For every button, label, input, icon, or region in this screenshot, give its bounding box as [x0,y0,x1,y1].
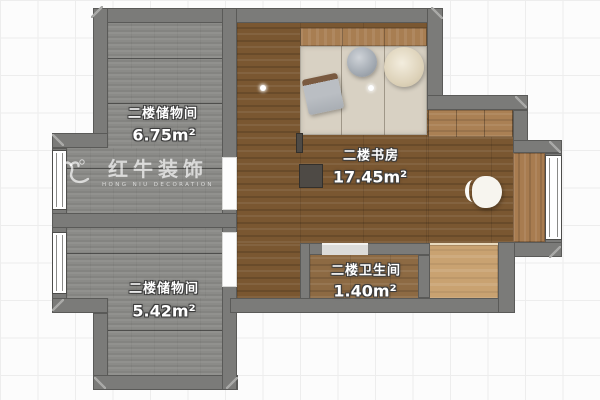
bed-headboard [300,28,427,46]
wall-bottom-storage [93,375,238,390]
wall-top [93,8,443,23]
folded-blanket [302,73,345,116]
window-left-lower [52,232,67,294]
study-floor-south [237,243,300,298]
desk-chair [472,176,502,208]
ceiling-light-dot [260,85,266,91]
room-area-storage-top: 6.75m² [132,126,195,145]
room-label-storage-bottom: 二楼储物间 [129,278,199,297]
wall-jog-upper [52,133,108,148]
partition-strip [296,133,303,153]
room-area-bathroom: 1.40m² [333,282,396,301]
wall-bathroom-right [418,255,430,298]
floor-cushion-gray [347,47,377,77]
wall-jog-lower [52,298,108,313]
wall-left-upper [93,8,108,148]
storage-cabinet [427,243,498,300]
dark-floor-unit [299,164,323,188]
wall-section-right [498,242,515,313]
wall-study-right-upper [427,8,443,97]
bathroom-door-opening [322,243,368,255]
tatami-seam [341,46,342,135]
floor-plan-canvas: 二楼储物间 6.75m² 二楼书房 17.45m² 二楼储物间 5.42m² 二… [0,0,600,400]
door-opening-upper [222,157,237,210]
window-right [545,155,562,240]
ceiling-light-dot [368,85,374,91]
wall-study-step [427,95,528,110]
desk [513,153,545,242]
door-opening-lower [222,232,237,287]
window-left-upper [52,150,67,210]
room-label-bathroom: 二楼卫生间 [331,260,401,279]
room-area-storage-bottom: 5.42m² [132,302,195,321]
room-area-study: 17.45m² [333,168,407,187]
wall-wing-bottom [513,242,562,257]
storage-mid-floor [67,148,222,213]
wall-wing-top [513,140,562,153]
wall-cabinet [428,110,513,137]
room-label-study: 二楼书房 [343,145,399,164]
room-label-storage-top: 二楼储物间 [128,103,198,122]
wall-storage-divider [52,213,237,228]
floor-cushion-cream [384,47,424,87]
